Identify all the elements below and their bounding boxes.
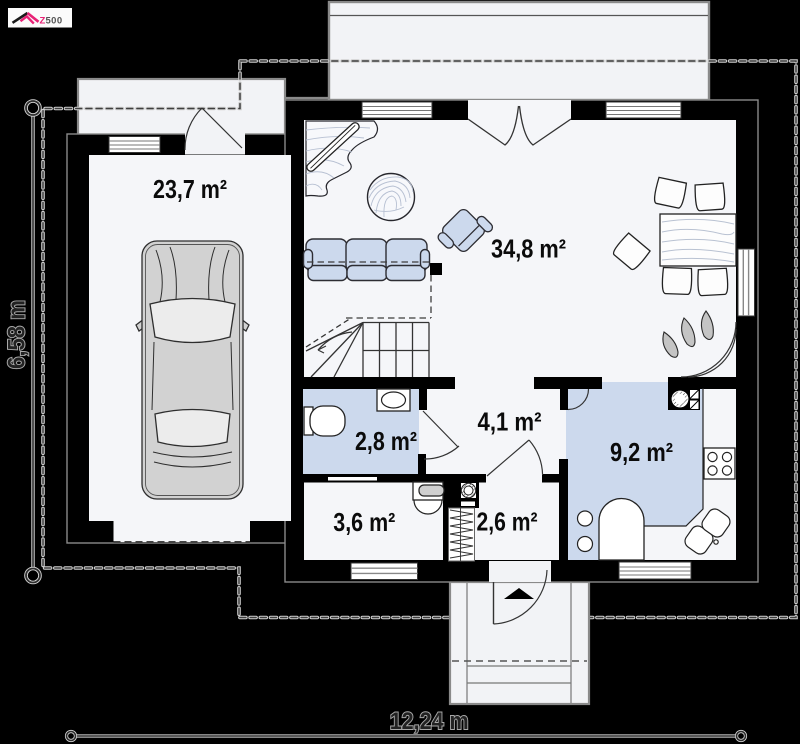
svg-text:9,2 m²: 9,2 m² <box>610 437 673 467</box>
svg-text:4,1 m²: 4,1 m² <box>478 407 542 437</box>
svg-text:2,6 m²: 2,6 m² <box>477 506 538 536</box>
svg-text:12,24 m: 12,24 m <box>390 708 469 735</box>
svg-text:500: 500 <box>46 15 63 26</box>
svg-text:34,8 m²: 34,8 m² <box>491 234 566 264</box>
svg-text:6,58 m: 6,58 m <box>4 300 31 369</box>
svg-text:3,6 m²: 3,6 m² <box>333 507 395 537</box>
svg-text:2,8 m²: 2,8 m² <box>355 426 417 456</box>
svg-text:23,7 m²: 23,7 m² <box>153 174 227 204</box>
